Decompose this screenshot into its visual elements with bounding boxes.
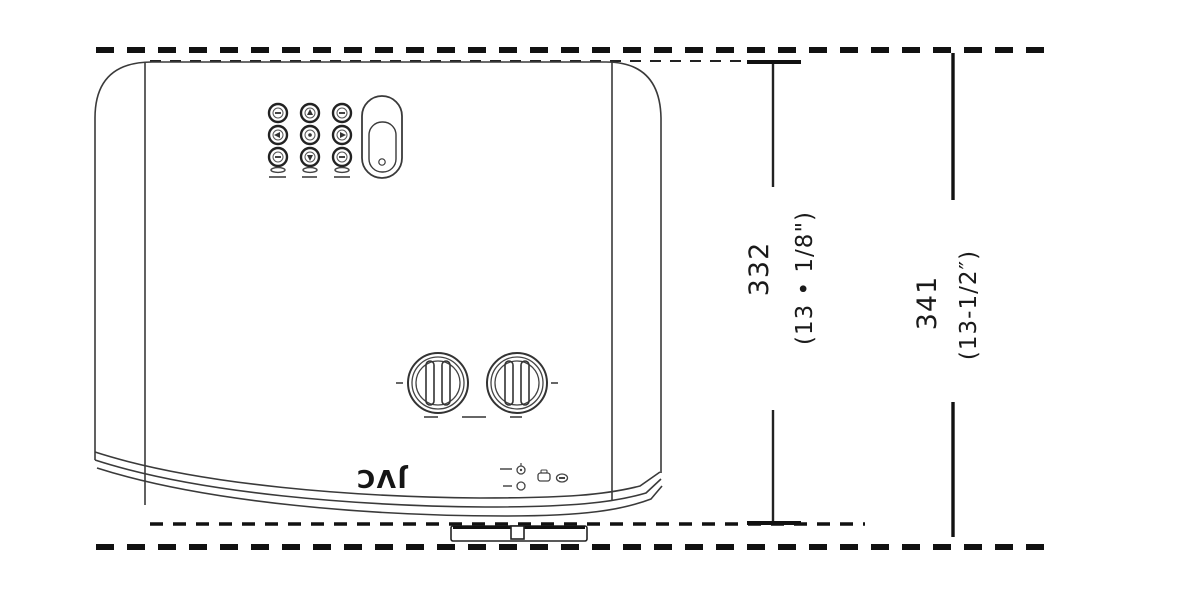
temp-icon-bar (559, 477, 565, 479)
function-glyph (275, 112, 281, 114)
lamp-icon (538, 473, 550, 481)
ok-button[interactable] (301, 126, 319, 144)
projector-body (95, 62, 662, 516)
arrow-up-button[interactable] (301, 104, 319, 122)
zoom-dial[interactable] (487, 353, 547, 413)
dim-341-mm-label: 341 (912, 276, 943, 331)
dial-caption-marks (396, 382, 558, 418)
dial-grip (521, 361, 529, 405)
arrow-left-icon (274, 132, 280, 138)
function-button[interactable] (269, 148, 287, 166)
dial-grip (426, 361, 434, 405)
indicator-led (517, 482, 525, 490)
lamp-icon-top (541, 470, 547, 473)
focus-dial[interactable] (408, 353, 468, 413)
rear-foot (451, 526, 587, 541)
dimension-332: 332 (13 • 1/8") (744, 62, 818, 523)
diagram-canvas: JVC 332 (13 • 1/8") 341 (13-1/2″) (0, 0, 1200, 600)
projector-dimension-diagram: JVC 332 (13 • 1/8") 341 (13-1/2″) (0, 0, 1200, 600)
arrow-down-icon (307, 155, 313, 161)
arrow-right-button[interactable] (333, 126, 351, 144)
function-glyph (339, 156, 345, 158)
indicator-caption (503, 485, 512, 487)
arrow-up-icon (307, 109, 313, 115)
arrow-down-button[interactable] (301, 148, 319, 166)
arrow-right-icon (340, 132, 346, 138)
dim-332-inch-label: (13 • 1/8") (792, 211, 818, 345)
jvc-logo: JVC (355, 464, 409, 493)
dim-341-inch-label: (13-1/2″) (956, 250, 982, 360)
indicator-cluster (500, 463, 568, 490)
power-slider[interactable] (362, 96, 402, 178)
foot-notch (511, 526, 524, 539)
control-button-grid (269, 104, 351, 178)
function-glyph (275, 156, 281, 158)
projector-outline (95, 62, 661, 473)
indicator-caption (500, 468, 512, 470)
function-button[interactable] (333, 104, 351, 122)
dial-grip (442, 361, 450, 405)
function-glyph (339, 112, 345, 114)
dimension-341: 341 (13-1/2″) (912, 53, 982, 537)
slider-dot-icon (379, 159, 385, 165)
function-button[interactable] (269, 104, 287, 122)
dim-332-mm-label: 332 (744, 242, 775, 297)
ok-glyph (308, 133, 312, 137)
dial-grip (505, 361, 513, 405)
function-button[interactable] (333, 148, 351, 166)
button-caption-marks (269, 168, 350, 178)
arrow-left-button[interactable] (269, 126, 287, 144)
indicator-led-dot (520, 469, 522, 471)
